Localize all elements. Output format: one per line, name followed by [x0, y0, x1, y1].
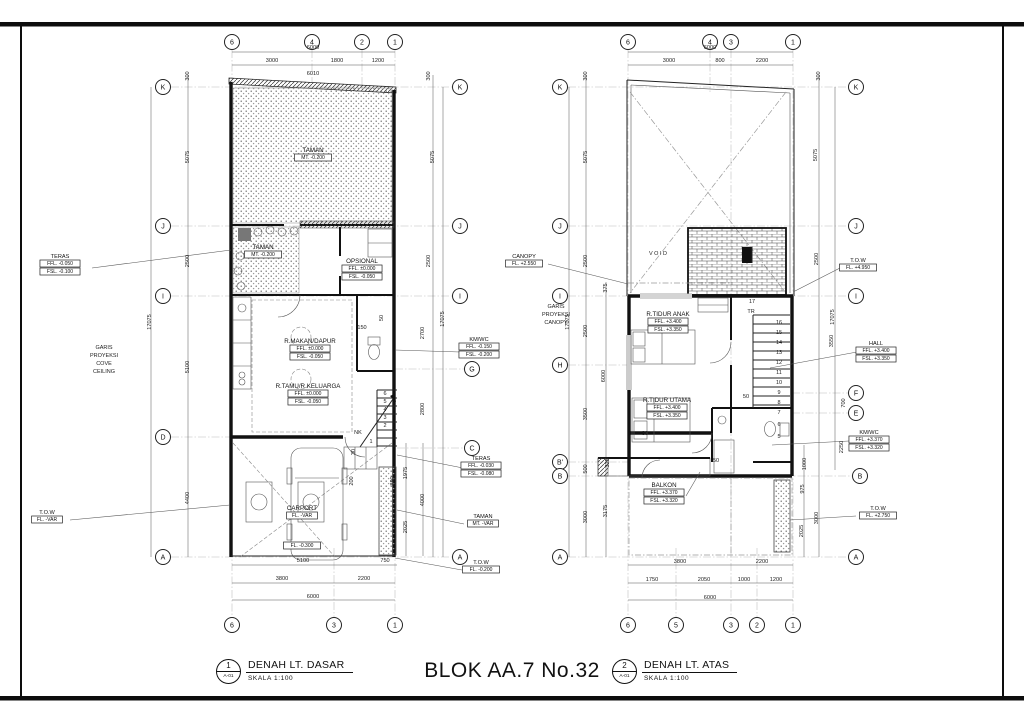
dimension-text: 2500 [814, 253, 820, 265]
level-tag-text: FSL. +3.320 [650, 498, 678, 504]
side-annotation: TERASFFL. -0.050FSL. -0.100 [40, 254, 80, 275]
side-annotation: T.O.WFL. +4.950 [840, 258, 877, 271]
room-label: T.O.W [870, 506, 886, 512]
level-tag-text: FFL. -0.030 [468, 463, 494, 469]
svg-text:A: A [458, 554, 463, 561]
dimension-text: 3000 [814, 512, 820, 524]
grid-bubble-2: 2 [355, 35, 370, 50]
dimension-text: 150 [357, 325, 366, 331]
dimension-text: 4000 [420, 494, 426, 506]
view-scale: SKALA 1:100 [246, 673, 353, 682]
drawing-text: 12 [776, 360, 782, 366]
svg-text:G: G [469, 366, 474, 373]
level-tag-text: FSL. -0.080 [468, 471, 494, 477]
level-tag-text: FFL. -0.050 [47, 261, 73, 267]
svg-text:6: 6 [230, 622, 234, 629]
drawing-sheet: 6421631KJIDAKJIGCA6000300018001200601030… [0, 0, 1024, 724]
drawing-text: 6 [383, 391, 386, 397]
drawing-text: V O I D [649, 251, 667, 257]
grid-bubble-1: 1 [786, 35, 801, 50]
grid-bubble-I: I [553, 289, 568, 304]
grid-bubble-D: D [156, 430, 171, 445]
drawing-text: TR [747, 309, 754, 315]
dimension-text: 2500 [583, 255, 589, 267]
room-label: T.O.W [39, 510, 55, 516]
dimension-text: 325 [605, 458, 611, 467]
drawing-text: 14 [776, 340, 782, 346]
grid-bubble-J: J [849, 219, 864, 234]
room-label: T.O.W [473, 560, 489, 566]
room-label: TAMAN [302, 147, 323, 154]
grid-bubble-3: 3 [724, 618, 739, 633]
level-tag-text: FL. -VAR [37, 517, 58, 523]
level-tag-text: FSL. +3.320 [855, 445, 883, 451]
dimension-text: 300 [185, 71, 191, 80]
dimension-text: 30 [642, 431, 648, 437]
room-label: KM/WC [859, 430, 878, 436]
view-title: DENAH LT. ATAS [642, 659, 737, 673]
svg-text:3: 3 [729, 39, 733, 46]
drawing-text: 10 [776, 380, 782, 386]
drawing-text: PROYEKSI [90, 353, 119, 359]
grid-bubble-5: 5 [669, 618, 684, 633]
dimension-text: 3800 [276, 576, 288, 582]
grid-bubble-6: 6 [225, 35, 240, 50]
svg-text:3: 3 [729, 622, 733, 629]
dimension-text: 300 [426, 71, 432, 80]
svg-text:I: I [855, 293, 857, 300]
dimension-text: 3800 [674, 559, 686, 565]
level-tag-text: FFL. ±0.000 [297, 346, 324, 352]
dimension-text: 2200 [756, 58, 768, 64]
side-annotation: TERASFFL. -0.030FSL. -0.080 [461, 456, 501, 477]
room-annotation: BALKONFFL. +3.370FSL. +3.320 [644, 482, 684, 504]
dimension-text: 1000 [738, 577, 750, 583]
drawing-text: 6 [777, 422, 780, 428]
dimension-text: 4400 [185, 492, 191, 504]
dimension-text: 5075 [583, 151, 589, 163]
grid-bubble-H: H [553, 358, 568, 373]
svg-text:A: A [854, 554, 859, 561]
grid-bubble-6: 6 [621, 35, 636, 50]
drawing-text: GARIS [95, 345, 112, 351]
grid-bubble-J: J [553, 219, 568, 234]
grid-bubble-3: 3 [724, 35, 739, 50]
annotation-layer: 6421631KJIDAKJIGCA6000300018001200601030… [32, 35, 897, 633]
svg-text:J: J [854, 223, 858, 230]
level-tag-text: MT. -0.200 [251, 252, 275, 258]
svg-text:E: E [854, 410, 859, 417]
dimension-text: 6000 [307, 45, 319, 51]
dimension-text: 50 [743, 394, 749, 400]
dimension-text: 2500 [185, 255, 191, 267]
svg-text:F: F [854, 390, 858, 397]
dimension-text: 2200 [756, 559, 768, 565]
drawing-text: 8 [777, 400, 780, 406]
grid-bubble-B: B [853, 469, 868, 484]
svg-text:J: J [458, 223, 462, 230]
drawing-text: 11 [776, 370, 782, 376]
grid-bubble-A: A [453, 550, 468, 565]
svg-text:A: A [161, 554, 166, 561]
drawing-text: 5 [777, 434, 780, 440]
view-sheet-ref: A-01 [619, 672, 629, 681]
side-annotation: T.O.WFL. -0.200 [463, 560, 500, 573]
room-label: HALL [869, 341, 883, 347]
dimension-text: 5100 [297, 558, 309, 564]
grid-bubble-1: 1 [388, 618, 403, 633]
level-tag-text: FFL. ±0.000 [349, 266, 376, 272]
drawing-text: 2 [383, 423, 386, 429]
drawing-text: 9 [777, 390, 780, 396]
dimension-text: 3000 [266, 58, 278, 64]
level-tag-text: FSL. -0.100 [47, 269, 73, 275]
drawing-text: 7 [777, 410, 780, 416]
dimension-text: 975 [800, 484, 806, 493]
plan-upper-floor: 643165321KJIHB'BAKJIFEBA6000300080022003… [506, 35, 897, 633]
dimension-text: 17075 [147, 314, 153, 330]
level-tag-text: FFL. -0.150 [466, 344, 492, 350]
drawing-text: 3 [383, 415, 386, 421]
svg-text:6: 6 [230, 39, 234, 46]
dimension-text: 2800 [420, 403, 426, 415]
dimension-text: 5075 [430, 151, 436, 163]
side-annotation: T.O.WFL. -VAR [32, 510, 63, 523]
svg-text:2: 2 [360, 39, 364, 46]
dimension-text: 6000 [704, 45, 716, 51]
view-scale: SKALA 1:100 [642, 673, 737, 682]
grid-bubble-K: K [553, 80, 568, 95]
grid-bubble-B: B [553, 469, 568, 484]
dimension-text: 700 [841, 398, 847, 407]
dimension-text: 1200 [372, 58, 384, 64]
svg-text:1: 1 [393, 622, 397, 629]
svg-text:J: J [161, 223, 165, 230]
svg-text:B: B [558, 473, 563, 480]
drawing-text: CANOPY [544, 320, 568, 326]
dimension-text: 5075 [813, 149, 819, 161]
svg-text:B': B' [557, 459, 563, 466]
grid-bubble-I: I [156, 289, 171, 304]
dimension-text: 2250 [839, 441, 845, 453]
drawing-text: GARIS [547, 304, 564, 310]
room-label: TAMAN [473, 514, 492, 520]
level-tag-text: FL. +2.750 [866, 513, 890, 519]
grid-lines-upper [568, 50, 852, 617]
view-title: DENAH LT. DASAR [246, 659, 353, 673]
grid-bubble-K: K [453, 80, 468, 95]
level-tag-text: FL. -VAR [292, 513, 313, 519]
room-label: CANOPY [512, 254, 536, 260]
drawing-text: 15 [776, 330, 782, 336]
grid-bubble-K: K [849, 80, 864, 95]
room-label: TERAS [51, 254, 70, 260]
level-tag-text: FSL. -0.050 [295, 399, 321, 405]
drawing-text: 4 [383, 407, 386, 413]
room-label: T.O.W [850, 258, 866, 264]
dimension-text: 2025 [403, 521, 409, 533]
dimension-text: 300 [816, 71, 822, 80]
view-number: 2 [622, 660, 626, 671]
grid-bubble-A: A [553, 550, 568, 565]
dimension-text: 3500 [583, 408, 589, 420]
grid-bubble-C: C [465, 441, 480, 456]
dimension-text: 50 [713, 458, 719, 464]
level-tag-text: MT. -0.200 [301, 155, 325, 161]
level-tag-text: FL. -0.200 [470, 567, 493, 573]
room-annotation: OPSIONALFFL. ±0.000FSL. -0.050 [342, 258, 382, 280]
dimension-text: 6000 [307, 594, 319, 600]
svg-text:K: K [558, 84, 563, 91]
drawing-text: 1 [369, 439, 372, 445]
side-annotation: KM/WCFFL. +3.370FSL. +3.320 [849, 430, 889, 451]
level-tag-text: FSL. -0.050 [349, 274, 375, 280]
svg-text:K: K [161, 84, 166, 91]
dimension-text: 2500 [426, 255, 432, 267]
dimension-text: 200 [349, 476, 355, 485]
room-label: R.MAKAN/DAPUR [284, 338, 336, 345]
level-tag-text: FFL. ±0.000 [295, 391, 322, 397]
side-annotation: T.O.WFL. +2.750 [860, 506, 897, 519]
drawing-text: 5 [383, 399, 386, 405]
view-tag-2: 2 A-01 DENAH LT. ATAS SKALA 1:100 [612, 659, 737, 684]
level-tag-text: FL. +2.550 [512, 261, 536, 267]
svg-text:2: 2 [755, 622, 759, 629]
grid-bubble-2: 2 [750, 618, 765, 633]
dimension-text: 1800 [331, 58, 343, 64]
dimension-text: 2700 [420, 327, 426, 339]
drawing-text: PROYEKSI [542, 312, 571, 318]
svg-text:1: 1 [791, 39, 795, 46]
dimension-text: 750 [380, 558, 389, 564]
level-tag-text: MT. -VAR [472, 521, 493, 527]
view-number: 1 [226, 660, 230, 671]
view-sheet-ref: A-01 [223, 672, 233, 681]
floor-plan-canvas: 6421631KJIDAKJIGCA6000300018001200601030… [0, 0, 1024, 724]
level-tag-text: FL. -0.300 [291, 543, 314, 549]
grid-bubble-I: I [453, 289, 468, 304]
level-tag-text: FSL. +3.350 [654, 327, 682, 333]
dimension-text: 300 [583, 71, 589, 80]
grid-bubble-E: E [849, 406, 864, 421]
grid-bubble-A: A [849, 550, 864, 565]
dimension-text: 3000 [583, 511, 589, 523]
svg-text:A: A [558, 554, 563, 561]
level-tag-text: FFL. +3.400 [654, 319, 681, 325]
room-annotation: R.TAMU/R.KELUARGAFFL. ±0.000FSL. -0.050 [276, 383, 342, 405]
dimension-text: 1000 [802, 458, 808, 470]
svg-text:D: D [160, 434, 165, 441]
level-tag-text: FSL. +3.350 [653, 413, 681, 419]
grid-bubble-I: I [849, 289, 864, 304]
grid-bubble-J: J [156, 219, 171, 234]
svg-text:I: I [459, 293, 461, 300]
dimension-text: 500 [583, 464, 589, 473]
level-tag-text: FFL. +3.370 [855, 437, 882, 443]
dimension-text: 3000 [663, 58, 675, 64]
svg-text:6: 6 [626, 622, 630, 629]
room-label: BALKON [651, 482, 676, 489]
level-tag-text: FFL. +3.370 [650, 490, 677, 496]
svg-text:I: I [559, 293, 561, 300]
svg-text:K: K [458, 84, 463, 91]
grid-bubble-A: A [156, 550, 171, 565]
svg-text:K: K [854, 84, 859, 91]
dimension-text: 2500 [583, 325, 589, 337]
side-annotation: KM/WCFFL. -0.150FSL. -0.200 [459, 337, 499, 358]
room-label: R.TIDUR UTAMA [643, 397, 692, 404]
dimension-text: 3175 [603, 505, 609, 517]
dimension-text: 2050 [698, 577, 710, 583]
dimension-text: 6000 [601, 370, 607, 382]
room-label: CARPORT [287, 505, 317, 512]
drawing-text: NK [354, 430, 362, 436]
dimension-text: 5100 [185, 361, 191, 373]
svg-text:1: 1 [393, 39, 397, 46]
drawing-text: COVE [96, 361, 112, 367]
side-annotation: CANOPYFL. +2.550 [506, 254, 543, 267]
dimension-text: 1750 [646, 577, 658, 583]
room-label: OPSIONAL [346, 258, 378, 265]
level-tag-text: FSL. -0.050 [297, 354, 323, 360]
drawing-text: 13 [776, 350, 782, 356]
dimension-text: 3550 [829, 335, 835, 347]
grid-bubble-1: 1 [786, 618, 801, 633]
upper-floor-fixtures [548, 264, 857, 555]
view-number-circle: 1 A-01 [216, 659, 241, 684]
svg-text:I: I [162, 293, 164, 300]
dimension-text: 800 [715, 58, 724, 64]
dimension-text: 17075 [830, 309, 836, 325]
level-tag-text: FSL. +3.350 [862, 356, 890, 362]
drawing-text: 16 [776, 320, 782, 326]
block-title: BLOK AA.7 No.32 [424, 659, 600, 683]
level-tag-text: FFL. +3.400 [862, 348, 889, 354]
room-label: R.TIDUR ANAK [646, 311, 690, 318]
dimension-text: 50 [379, 315, 385, 321]
room-annotation: CARPORTFL. -VAR [287, 505, 318, 519]
room-label: TERAS [472, 456, 491, 462]
dimension-text: 5075 [185, 151, 191, 163]
dimension-text: 17075 [440, 311, 446, 327]
dimension-text: 6010 [307, 71, 319, 77]
level-tag-text: FL. +4.950 [846, 265, 870, 271]
drawing-text: 17 [749, 299, 755, 305]
side-annotation: TAMANMT. -VAR [468, 514, 499, 527]
room-annotation: R.TIDUR UTAMAFFL. +3.400FSL. +3.350 [643, 397, 692, 419]
room-annotation: R.TIDUR ANAKFFL. +3.400FSL. +3.350 [646, 311, 690, 333]
side-annotation: HALLFFL. +3.400FSL. +3.350 [856, 341, 896, 362]
grid-bubble-1: 1 [388, 35, 403, 50]
dimension-text: 375 [603, 283, 609, 292]
dimension-text: 890 [390, 476, 396, 485]
room-label: R.TAMU/R.KELUARGA [276, 383, 342, 390]
dimension-text: 30 [351, 449, 357, 455]
grid-bubble-B': B' [553, 455, 568, 470]
view-number-circle: 2 A-01 [612, 659, 637, 684]
room-label: KM/WC [469, 337, 488, 343]
svg-text:B: B [858, 473, 863, 480]
grid-bubble-J: J [453, 219, 468, 234]
grid-bubble-6: 6 [225, 618, 240, 633]
room-annotation: R.MAKAN/DAPURFFL. ±0.000FSL. -0.050 [284, 338, 336, 360]
svg-text:6: 6 [626, 39, 630, 46]
svg-text:5: 5 [674, 622, 678, 629]
svg-text:J: J [558, 223, 562, 230]
svg-text:1: 1 [791, 622, 795, 629]
level-tag-text: FSL. -0.200 [466, 352, 492, 358]
dimension-text: 6000 [704, 595, 716, 601]
dimension-text: 1200 [770, 577, 782, 583]
room-label: TAMAN [252, 244, 273, 251]
svg-text:3: 3 [332, 622, 336, 629]
dimension-text: 2200 [358, 576, 370, 582]
level-tag-text: FFL. +3.400 [653, 405, 680, 411]
svg-text:C: C [469, 445, 474, 452]
view-tag-1: 1 A-01 DENAH LT. DASAR SKALA 1:100 [216, 659, 353, 684]
grid-bubble-K: K [156, 80, 171, 95]
grid-bubble-G: G [465, 362, 480, 377]
svg-text:H: H [557, 362, 562, 369]
grid-bubble-F: F [849, 386, 864, 401]
dimension-text: 2025 [799, 525, 805, 537]
grid-bubble-6: 6 [621, 618, 636, 633]
upper-floor-walls [598, 80, 794, 476]
dimension-text: 1975 [403, 467, 409, 479]
room-annotation: FL. -0.300 [284, 542, 321, 549]
grid-bubble-3: 3 [327, 618, 342, 633]
drawing-text: CEILING [93, 369, 115, 375]
